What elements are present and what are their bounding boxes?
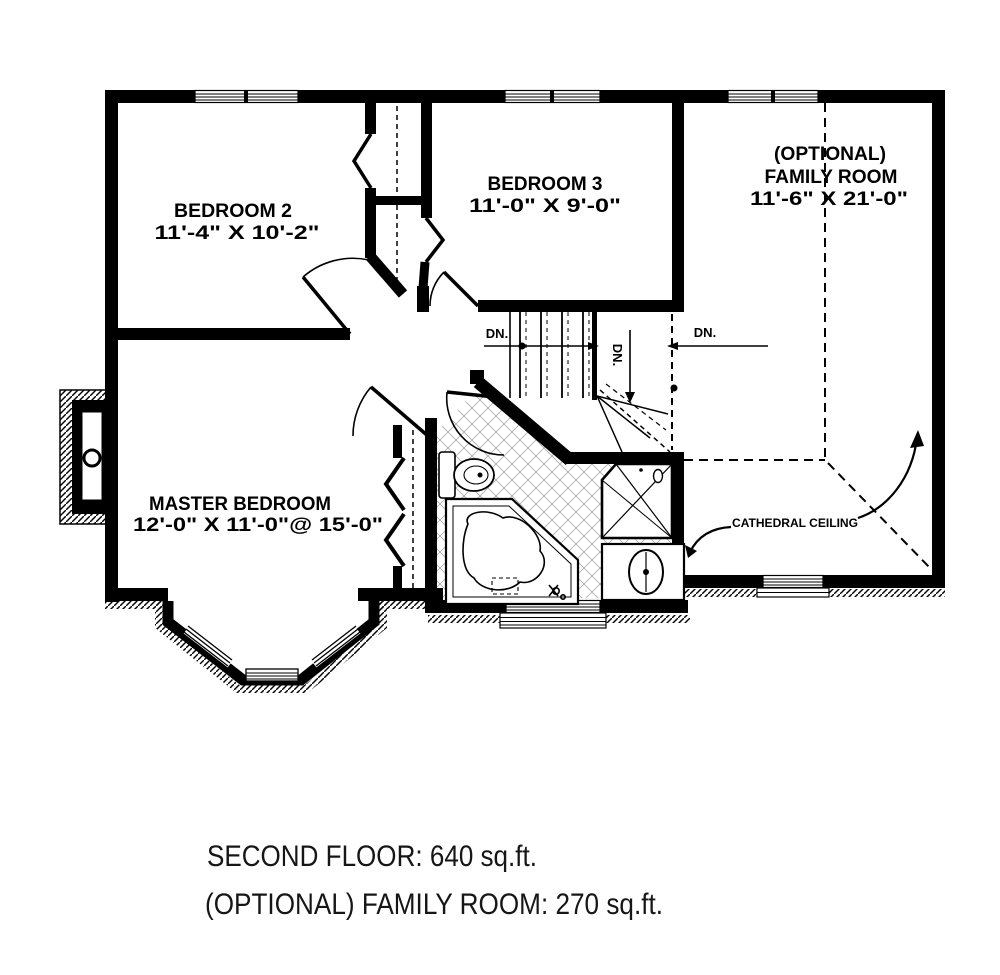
label-cathedral-ceiling: CATHEDRAL CEILING bbox=[732, 516, 858, 530]
label-dn-right: DN. bbox=[694, 325, 716, 340]
wall-master-closet-upper bbox=[393, 425, 402, 458]
label-bedroom3-name: BEDROOM 3 bbox=[488, 174, 603, 195]
label-bedroom2-dims: 11'-4" X 10'-2" bbox=[155, 223, 320, 244]
label-family-name: FAMILY ROOM bbox=[765, 167, 898, 188]
label-master-dims: 12'-0" X 11'-0"@ 15'-0" bbox=[133, 515, 383, 536]
ceiling-slope-arrow bbox=[858, 430, 924, 518]
down-arrow-right bbox=[667, 342, 768, 350]
arrow-head-icon bbox=[625, 392, 635, 403]
label-family-dims: 11'-6" X 21'-0" bbox=[750, 189, 908, 210]
down-arrow-middle bbox=[625, 330, 635, 403]
label-dn-middle: DN. bbox=[610, 344, 625, 366]
bifold-door-master-closet-1 bbox=[386, 458, 404, 510]
wall-bath-left bbox=[425, 418, 437, 600]
bifold-door-bed2-closet bbox=[354, 134, 371, 188]
wall-bed3-door-jamb bbox=[417, 286, 429, 312]
label-bedroom2-name: BEDROOM 2 bbox=[174, 201, 292, 222]
wall-bed3-right bbox=[672, 103, 684, 312]
caption-second-floor: SECOND FLOOR: 640 sq.ft. bbox=[207, 840, 537, 873]
label-master-name: MASTER BEDROOM bbox=[149, 494, 331, 515]
door-master-bedroom bbox=[353, 387, 428, 436]
wall-bed2-master bbox=[118, 328, 350, 340]
window-family-top bbox=[728, 91, 818, 103]
bifold-door-master-closet-2 bbox=[386, 514, 404, 566]
wall-closet-diagonal bbox=[370, 256, 403, 294]
wall-left bbox=[105, 90, 118, 602]
wall-master-closet-lower bbox=[393, 566, 402, 600]
captions: SECOND FLOOR: 640 sq.ft. (OPTIONAL) FAMI… bbox=[205, 840, 663, 921]
wall-closet-connector bbox=[423, 262, 425, 288]
shower-head-icon bbox=[654, 470, 663, 483]
stair-dot-right bbox=[671, 385, 678, 392]
label-family-optional: (OPTIONAL) bbox=[774, 144, 886, 165]
window-family-bottom bbox=[757, 576, 829, 598]
wall-bed3-bottom bbox=[478, 300, 684, 312]
caption-optional-family-room: (OPTIONAL) FAMILY ROOM: 270 sq.ft. bbox=[205, 888, 663, 921]
shower bbox=[602, 464, 672, 538]
arrow-head-icon bbox=[685, 545, 697, 558]
fireplace-flue-icon bbox=[84, 450, 100, 466]
wall-master-bottom-left bbox=[105, 588, 168, 601]
label-bedroom3-dims: 11'-0" X 9'-0" bbox=[469, 196, 621, 217]
door-bedroom2 bbox=[303, 258, 369, 334]
fireplace bbox=[60, 390, 107, 524]
stair-center-rail bbox=[592, 312, 597, 400]
sink-vanity bbox=[602, 544, 684, 600]
floor-plan-page: BEDROOM 2 11'-4" X 10'-2" BEDROOM 3 11'-… bbox=[0, 0, 1000, 975]
cathedral-leader-arrow bbox=[685, 527, 731, 558]
window-bed2 bbox=[195, 91, 298, 103]
wall-closet-left-upper bbox=[365, 103, 376, 134]
wall-right bbox=[932, 90, 945, 588]
door-bedroom3 bbox=[430, 272, 478, 306]
bifold-door-bed3-closet bbox=[426, 218, 443, 262]
bay-window bbox=[168, 601, 374, 681]
stair-treads bbox=[520, 312, 589, 398]
wall-closet-divider bbox=[365, 196, 432, 205]
label-dn-left: DN. bbox=[486, 326, 508, 341]
floor-plan-drawing: BEDROOM 2 11'-4" X 10'-2" BEDROOM 3 11'-… bbox=[0, 0, 1000, 975]
arrow-head-icon bbox=[910, 430, 924, 448]
window-bed3 bbox=[505, 91, 600, 103]
wall-bath-topright bbox=[566, 452, 684, 464]
